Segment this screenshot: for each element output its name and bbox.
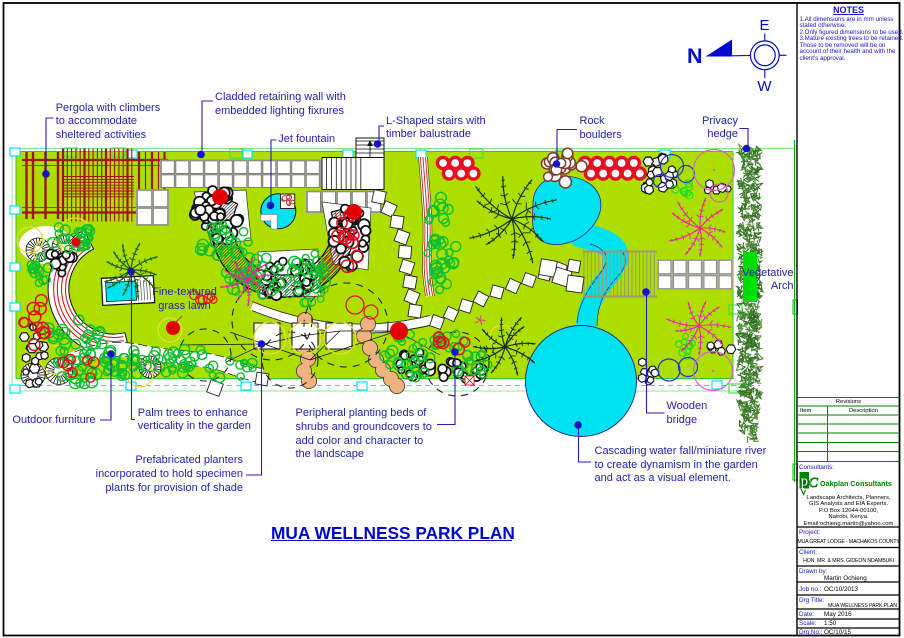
svg-text:p: p bbox=[801, 474, 808, 490]
svg-text:C: C bbox=[809, 476, 819, 491]
